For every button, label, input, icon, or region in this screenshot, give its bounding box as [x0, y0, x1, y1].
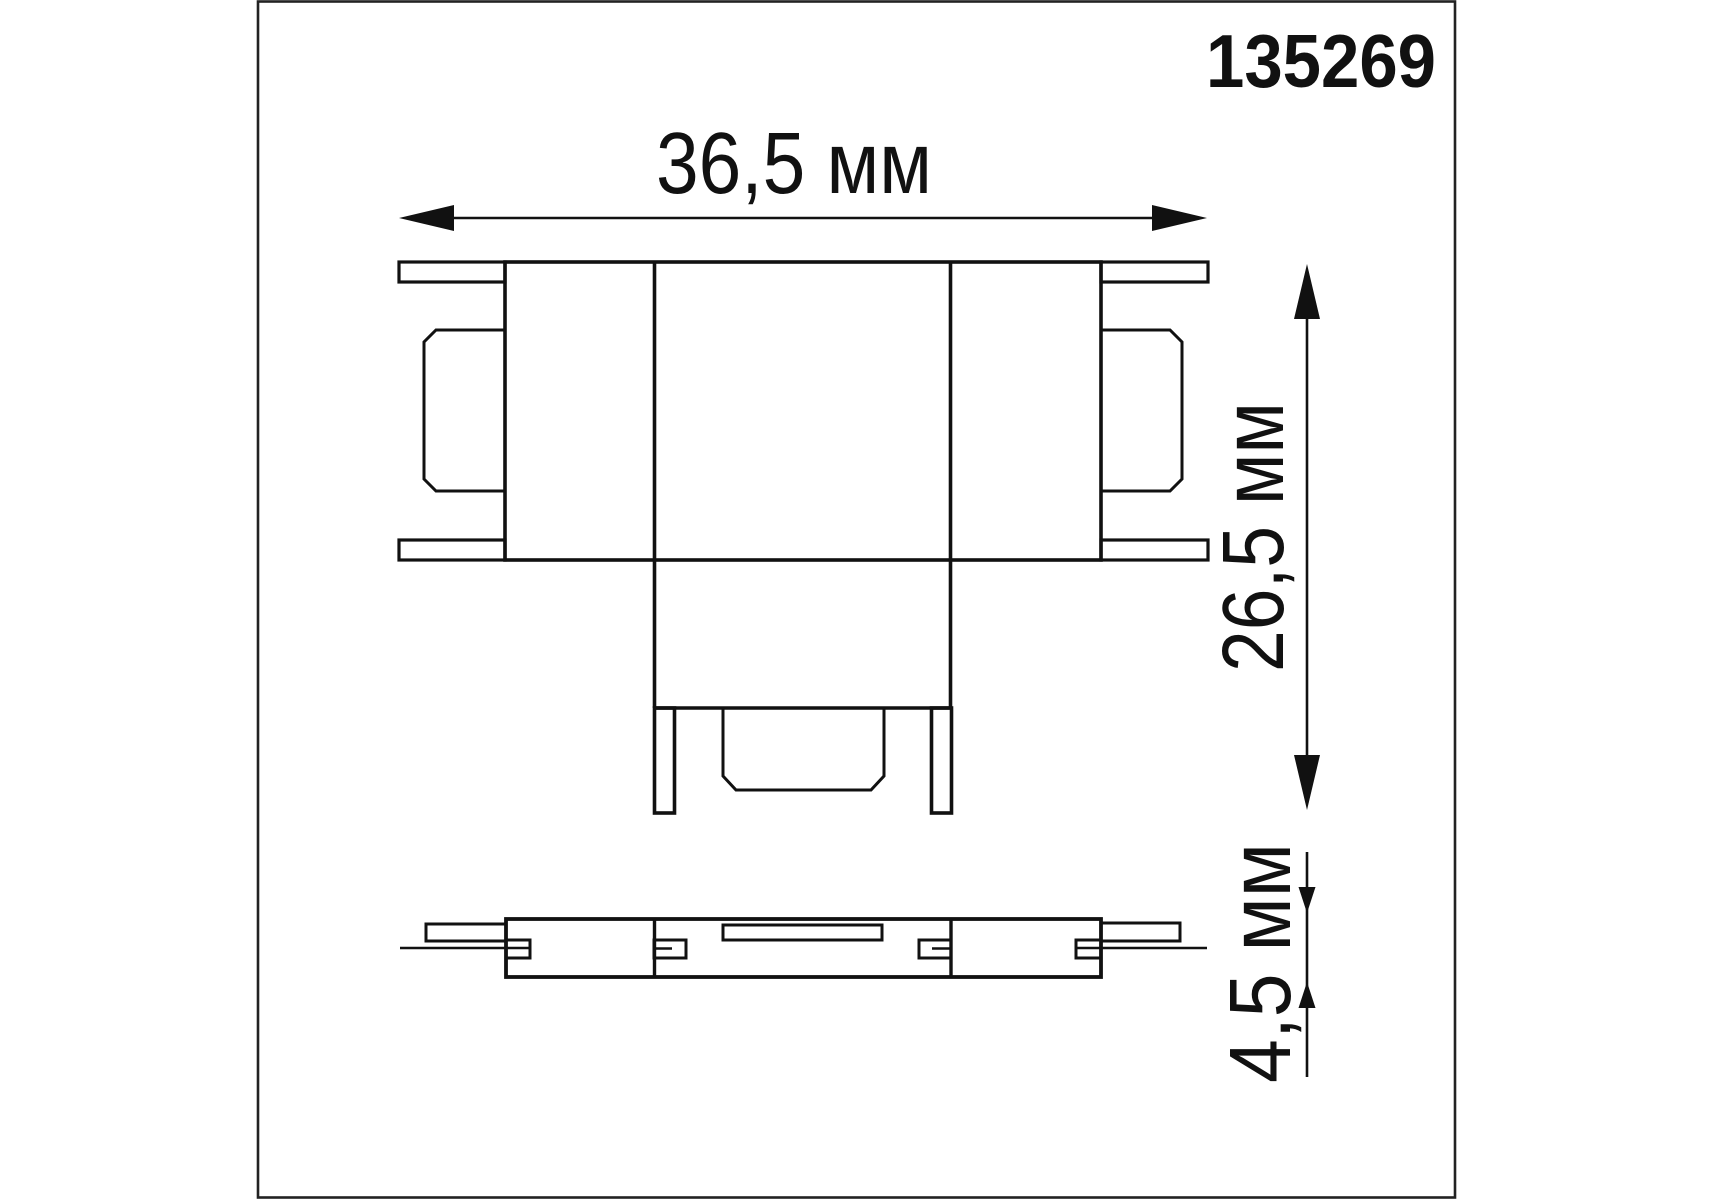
svg-text:4,5 мм: 4,5 мм: [1212, 843, 1309, 1083]
svg-text:36,5 мм: 36,5 мм: [656, 115, 932, 212]
svg-text:135269: 135269: [1206, 19, 1436, 103]
svg-text:26,5 мм: 26,5 мм: [1205, 402, 1302, 672]
